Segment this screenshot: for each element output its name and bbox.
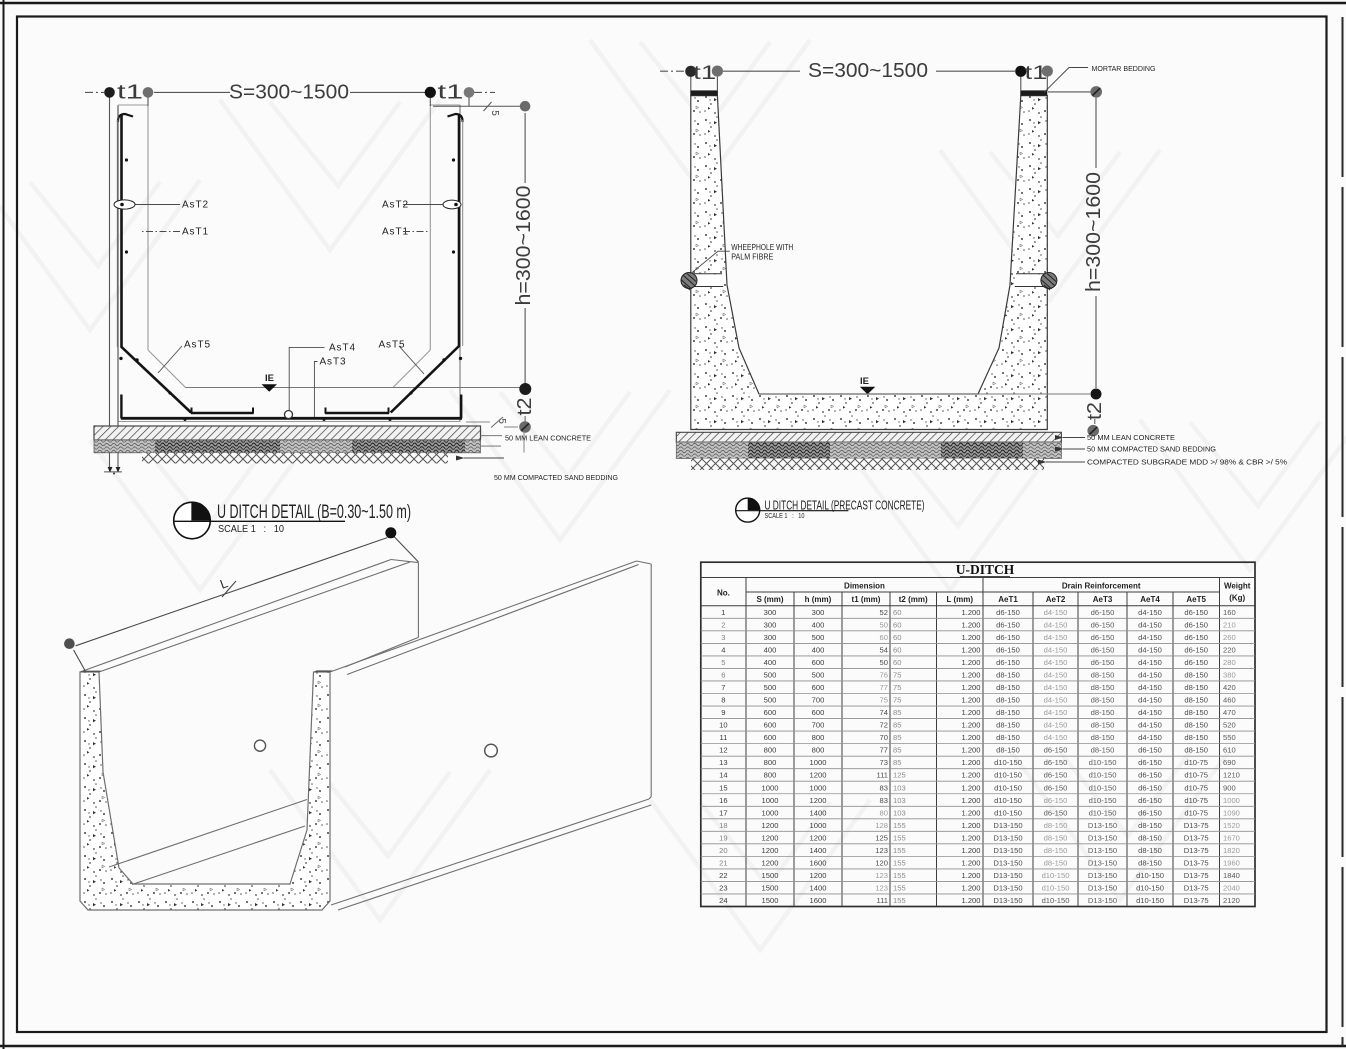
- svg-text:d8-150: d8-150: [1184, 746, 1208, 755]
- svg-text:77: 77: [880, 746, 888, 755]
- svg-text:d4-150: d4-150: [1044, 633, 1068, 642]
- svg-text:1.200: 1.200: [961, 746, 980, 755]
- svg-text:2: 2: [721, 620, 725, 629]
- svg-text:d4-150: d4-150: [1044, 608, 1068, 617]
- svg-text:1600: 1600: [810, 858, 827, 867]
- svg-text:600: 600: [764, 721, 777, 730]
- svg-text:500: 500: [812, 671, 825, 680]
- svg-text:d8-150: d8-150: [1091, 746, 1115, 755]
- svg-text:52: 52: [880, 608, 888, 617]
- svg-text:D13-150: D13-150: [1088, 833, 1117, 842]
- svg-text:123: 123: [875, 871, 888, 880]
- svg-text:WHEEPHOLE WITH: WHEEPHOLE WITH: [731, 243, 793, 252]
- svg-text:1.200: 1.200: [961, 821, 980, 830]
- svg-text:d6-150: d6-150: [1138, 796, 1162, 805]
- svg-text:MORTAR BEDDING: MORTAR BEDDING: [1092, 64, 1156, 73]
- svg-text:550: 550: [1223, 733, 1236, 742]
- svg-text:AeT2: AeT2: [1046, 595, 1066, 604]
- svg-text:D13-150: D13-150: [993, 821, 1022, 830]
- svg-text:60: 60: [893, 620, 901, 629]
- svg-text:1.200: 1.200: [961, 658, 980, 667]
- svg-text:60: 60: [893, 608, 901, 617]
- svg-text:t1: t1: [438, 82, 464, 104]
- svg-text:70: 70: [880, 733, 888, 742]
- svg-text:85: 85: [893, 708, 901, 717]
- svg-text:AeT1: AeT1: [998, 595, 1018, 604]
- svg-text:1.200: 1.200: [961, 708, 980, 717]
- svg-text:AsT2: AsT2: [382, 200, 408, 211]
- svg-text:111: 111: [876, 771, 888, 780]
- svg-text:1200: 1200: [762, 846, 779, 855]
- svg-text:1520: 1520: [1223, 821, 1240, 830]
- svg-text:700: 700: [812, 721, 825, 730]
- svg-text:d10-150: d10-150: [994, 796, 1022, 805]
- svg-text:50: 50: [880, 620, 888, 629]
- svg-text:D13-75: D13-75: [1184, 884, 1209, 893]
- svg-text:50 MM LEAN CONCRETE: 50 MM LEAN CONCRETE: [1087, 433, 1175, 442]
- svg-text:S=300~1500: S=300~1500: [808, 59, 928, 82]
- svg-text:d4-150: d4-150: [1138, 696, 1162, 705]
- svg-text:d6-150: d6-150: [1138, 783, 1162, 792]
- svg-text:d6-150: d6-150: [1091, 608, 1115, 617]
- svg-text:1210: 1210: [1223, 771, 1240, 780]
- svg-text:IE: IE: [860, 376, 869, 387]
- svg-text:600: 600: [764, 708, 777, 717]
- svg-text:d10-150: d10-150: [1089, 783, 1117, 792]
- svg-text:d4-150: d4-150: [1044, 708, 1068, 717]
- svg-text:d6-150: d6-150: [1044, 771, 1068, 780]
- svg-text:d10-150: d10-150: [1089, 796, 1117, 805]
- svg-text:D13-75: D13-75: [1184, 858, 1209, 867]
- svg-text:22: 22: [719, 871, 727, 880]
- svg-text:D13-150: D13-150: [1088, 871, 1117, 880]
- svg-text:t1: t1: [117, 82, 143, 104]
- svg-text:80: 80: [880, 808, 888, 817]
- svg-text:380: 380: [1223, 671, 1236, 680]
- svg-text:D13-75: D13-75: [1184, 846, 1209, 855]
- svg-text:d6-150: d6-150: [1044, 783, 1068, 792]
- svg-text:128: 128: [875, 821, 888, 830]
- svg-text:d10-150: d10-150: [1042, 896, 1070, 905]
- svg-text:d8-150: d8-150: [1138, 821, 1162, 830]
- svg-text:d4-150: d4-150: [1138, 683, 1162, 692]
- svg-text:d6-150: d6-150: [1138, 771, 1162, 780]
- svg-text:1000: 1000: [762, 808, 779, 817]
- svg-text:155: 155: [893, 846, 906, 855]
- svg-text:600: 600: [812, 708, 825, 717]
- svg-text:AeT4: AeT4: [1140, 595, 1160, 604]
- svg-text:460: 460: [1223, 696, 1236, 705]
- svg-text:800: 800: [764, 758, 777, 767]
- svg-text:1000: 1000: [810, 821, 827, 830]
- svg-text:1.200: 1.200: [961, 633, 980, 642]
- svg-text:D13-150: D13-150: [993, 846, 1022, 855]
- svg-text:d8-150: d8-150: [1138, 858, 1162, 867]
- svg-text:260: 260: [1223, 633, 1236, 642]
- svg-text:77: 77: [880, 683, 888, 692]
- svg-text:103: 103: [893, 783, 906, 792]
- svg-text:1000: 1000: [1223, 796, 1240, 805]
- svg-text:d10-150: d10-150: [994, 808, 1022, 817]
- svg-text:1.200: 1.200: [961, 884, 980, 893]
- svg-text:1.200: 1.200: [961, 758, 980, 767]
- svg-text:t2: t2: [1084, 402, 1106, 420]
- svg-text:d10-150: d10-150: [1042, 871, 1070, 880]
- svg-text:1.200: 1.200: [961, 871, 980, 880]
- svg-text:d4-150: d4-150: [1138, 733, 1162, 742]
- svg-text:75: 75: [893, 683, 901, 692]
- svg-text:D13-150: D13-150: [993, 896, 1022, 905]
- svg-text:5: 5: [721, 658, 725, 667]
- svg-text:D13-75: D13-75: [1184, 821, 1209, 830]
- svg-text:220: 220: [1223, 645, 1236, 654]
- svg-text:85: 85: [893, 721, 901, 730]
- svg-text:160: 160: [1223, 608, 1236, 617]
- svg-text:AsT2: AsT2: [182, 200, 208, 211]
- svg-text:54: 54: [880, 645, 888, 654]
- svg-text:d8-150: d8-150: [996, 733, 1020, 742]
- svg-text:1960: 1960: [1223, 858, 1240, 867]
- svg-text:1400: 1400: [810, 846, 827, 855]
- svg-text:d8-150: d8-150: [996, 696, 1020, 705]
- svg-text:83: 83: [880, 796, 888, 805]
- svg-text:d10-150: d10-150: [994, 783, 1022, 792]
- svg-text:d8-150: d8-150: [996, 671, 1020, 680]
- svg-text:155: 155: [893, 896, 906, 905]
- svg-text:d6-150: d6-150: [996, 658, 1020, 667]
- svg-text:d4-150: d4-150: [1138, 633, 1162, 642]
- svg-text:d4-150: d4-150: [1138, 721, 1162, 730]
- svg-text:9: 9: [721, 708, 725, 717]
- svg-text:d8-150: d8-150: [1044, 846, 1068, 855]
- svg-text:d8-150: d8-150: [1091, 696, 1115, 705]
- svg-text:d4-150: d4-150: [1044, 721, 1068, 730]
- svg-text:AsT1: AsT1: [182, 227, 208, 238]
- svg-text:PALM FIBRE: PALM FIBRE: [731, 253, 773, 262]
- svg-text:15: 15: [719, 783, 727, 792]
- svg-text:2040: 2040: [1223, 884, 1240, 893]
- svg-text:72: 72: [880, 721, 888, 730]
- svg-text:900: 900: [1223, 783, 1236, 792]
- svg-text:83: 83: [880, 783, 888, 792]
- svg-text:280: 280: [1223, 658, 1236, 667]
- svg-text:1200: 1200: [810, 871, 827, 880]
- svg-text:60: 60: [880, 633, 888, 642]
- svg-text:155: 155: [893, 871, 906, 880]
- svg-text:700: 700: [812, 696, 825, 705]
- svg-text:13: 13: [719, 758, 727, 767]
- svg-text:300: 300: [764, 608, 777, 617]
- svg-text:1500: 1500: [762, 884, 779, 893]
- svg-text:d8-150: d8-150: [1138, 846, 1162, 855]
- svg-text:400: 400: [764, 645, 777, 654]
- svg-text:d6-150: d6-150: [996, 608, 1020, 617]
- svg-text:d8-150: d8-150: [996, 708, 1020, 717]
- svg-text:t1 (mm): t1 (mm): [852, 595, 881, 604]
- svg-text:1.200: 1.200: [961, 608, 980, 617]
- svg-text:125: 125: [893, 771, 906, 780]
- svg-text:No.: No.: [717, 588, 730, 597]
- svg-text:d8-150: d8-150: [1184, 683, 1208, 692]
- svg-text:D13-75: D13-75: [1184, 871, 1209, 880]
- svg-text:d4-150: d4-150: [1138, 671, 1162, 680]
- svg-text:120: 120: [875, 858, 888, 867]
- svg-text:18: 18: [719, 821, 727, 830]
- svg-text:1000: 1000: [762, 796, 779, 805]
- svg-text:1200: 1200: [762, 821, 779, 830]
- svg-text:d8-150: d8-150: [1044, 821, 1068, 830]
- svg-text:300: 300: [764, 620, 777, 629]
- svg-text:t1: t1: [693, 63, 716, 84]
- svg-text:19: 19: [719, 833, 727, 842]
- svg-text:d6-150: d6-150: [996, 620, 1020, 629]
- svg-text:AsT1: AsT1: [382, 227, 408, 238]
- svg-text:d4-150: d4-150: [1044, 696, 1068, 705]
- svg-text:d8-150: d8-150: [1091, 708, 1115, 717]
- svg-text:1.200: 1.200: [961, 620, 980, 629]
- svg-text:d8-150: d8-150: [996, 721, 1020, 730]
- svg-text:16: 16: [719, 796, 727, 805]
- svg-text:D13-75: D13-75: [1184, 896, 1209, 905]
- svg-text:1.200: 1.200: [961, 645, 980, 654]
- svg-text:1200: 1200: [810, 833, 827, 842]
- svg-text:1600: 1600: [810, 896, 827, 905]
- svg-text:1.200: 1.200: [961, 896, 980, 905]
- svg-text:1.200: 1.200: [961, 808, 980, 817]
- svg-text:73: 73: [880, 758, 888, 767]
- svg-text:3: 3: [721, 633, 725, 642]
- svg-text:AsT5: AsT5: [184, 340, 210, 351]
- svg-text:d8-150: d8-150: [1091, 683, 1115, 692]
- svg-text:1.200: 1.200: [961, 858, 980, 867]
- svg-text:85: 85: [893, 746, 901, 755]
- svg-text:155: 155: [893, 884, 906, 893]
- svg-text:d4-150: d4-150: [1044, 620, 1068, 629]
- svg-text:d6-150: d6-150: [1091, 658, 1115, 667]
- svg-text:d4-150: d4-150: [1138, 645, 1162, 654]
- svg-text:1.200: 1.200: [961, 683, 980, 692]
- svg-text:1200: 1200: [810, 796, 827, 805]
- svg-text:d8-150: d8-150: [1184, 733, 1208, 742]
- svg-text:Drain Reinforcement: Drain Reinforcement: [1062, 581, 1141, 590]
- svg-text:D13-150: D13-150: [993, 858, 1022, 867]
- svg-text:1820: 1820: [1223, 846, 1240, 855]
- svg-text:d6-150: d6-150: [996, 633, 1020, 642]
- svg-text:d10-150: d10-150: [1042, 884, 1070, 893]
- svg-text:1.200: 1.200: [961, 846, 980, 855]
- svg-text:D13-150: D13-150: [1088, 846, 1117, 855]
- svg-text:d10-150: d10-150: [1089, 758, 1117, 767]
- svg-text:20: 20: [719, 846, 727, 855]
- svg-text:8: 8: [721, 696, 725, 705]
- svg-text:800: 800: [764, 746, 777, 755]
- svg-text:d6-150: d6-150: [1138, 746, 1162, 755]
- svg-text:470: 470: [1223, 708, 1236, 717]
- svg-text:D13-75: D13-75: [1184, 833, 1209, 842]
- svg-text:50: 50: [880, 658, 888, 667]
- svg-text:d8-150: d8-150: [1091, 721, 1115, 730]
- svg-text:1000: 1000: [810, 783, 827, 792]
- svg-text:1670: 1670: [1223, 833, 1240, 842]
- svg-text:75: 75: [893, 696, 901, 705]
- svg-text:400: 400: [764, 658, 777, 667]
- svg-text:Dimension: Dimension: [844, 581, 885, 590]
- svg-text:7: 7: [721, 683, 725, 692]
- svg-text:1200: 1200: [762, 833, 779, 842]
- svg-text:1500: 1500: [762, 871, 779, 880]
- svg-text:d4-150: d4-150: [1138, 620, 1162, 629]
- svg-text:1200: 1200: [762, 858, 779, 867]
- svg-text:1.200: 1.200: [961, 796, 980, 805]
- svg-text:d6-150: d6-150: [1138, 758, 1162, 767]
- svg-text:400: 400: [812, 620, 825, 629]
- svg-text:6: 6: [721, 671, 725, 680]
- svg-text:d4-150: d4-150: [1044, 733, 1068, 742]
- svg-text:(Kg): (Kg): [1229, 593, 1245, 602]
- svg-text:d4-150: d4-150: [1044, 645, 1068, 654]
- svg-text:1.200: 1.200: [961, 671, 980, 680]
- svg-text:D13-150: D13-150: [1088, 821, 1117, 830]
- svg-text:420: 420: [1223, 683, 1236, 692]
- svg-text:d8-150: d8-150: [1044, 858, 1068, 867]
- svg-text:500: 500: [764, 696, 777, 705]
- svg-text:1.200: 1.200: [961, 733, 980, 742]
- svg-text:AsT3: AsT3: [320, 357, 346, 368]
- svg-text:D13-150: D13-150: [993, 884, 1022, 893]
- svg-text:t2 (mm): t2 (mm): [899, 595, 928, 604]
- svg-text:D13-150: D13-150: [993, 833, 1022, 842]
- svg-text:t1: t1: [1025, 63, 1048, 84]
- svg-text:75: 75: [880, 696, 888, 705]
- svg-text:155: 155: [893, 833, 906, 842]
- svg-text:1840: 1840: [1223, 871, 1240, 880]
- svg-text:60: 60: [893, 645, 901, 654]
- svg-text:d10-150: d10-150: [1089, 808, 1117, 817]
- svg-text:d10-75: d10-75: [1184, 783, 1208, 792]
- svg-text:D13-150: D13-150: [1088, 884, 1117, 893]
- svg-text:d4-150: d4-150: [1044, 683, 1068, 692]
- svg-text:14: 14: [719, 771, 727, 780]
- svg-text:103: 103: [893, 796, 906, 805]
- svg-text:12: 12: [719, 746, 727, 755]
- svg-text:21: 21: [719, 858, 727, 867]
- svg-text:600: 600: [812, 683, 825, 692]
- svg-text:d4-150: d4-150: [1138, 658, 1162, 667]
- svg-text:d6-150: d6-150: [1184, 645, 1208, 654]
- svg-text:d10-75: d10-75: [1184, 771, 1208, 780]
- svg-text:520: 520: [1223, 721, 1236, 730]
- svg-text:1000: 1000: [810, 758, 827, 767]
- svg-text:SCALE 1 : 10: SCALE 1 : 10: [765, 511, 805, 520]
- svg-text:400: 400: [812, 645, 825, 654]
- svg-text:d8-150: d8-150: [1184, 708, 1208, 717]
- svg-text:85: 85: [893, 758, 901, 767]
- svg-text:85: 85: [893, 733, 901, 742]
- svg-text:d10-75: d10-75: [1184, 808, 1208, 817]
- svg-text:d8-150: d8-150: [1184, 721, 1208, 730]
- svg-text:d6-150: d6-150: [1184, 658, 1208, 667]
- svg-text:d6-150: d6-150: [1091, 645, 1115, 654]
- svg-text:800: 800: [812, 746, 825, 755]
- svg-text:Weight: Weight: [1224, 581, 1251, 590]
- svg-text:d4-150: d4-150: [1044, 671, 1068, 680]
- svg-text:1.200: 1.200: [961, 696, 980, 705]
- svg-text:d6-150: d6-150: [1044, 758, 1068, 767]
- svg-text:300: 300: [812, 608, 825, 617]
- svg-text:60: 60: [893, 658, 901, 667]
- svg-text:1400: 1400: [810, 808, 827, 817]
- svg-text:610: 610: [1223, 746, 1236, 755]
- svg-text:h=300~1600: h=300~1600: [1082, 172, 1105, 292]
- svg-text:d6-150: d6-150: [1091, 620, 1115, 629]
- svg-text:d10-150: d10-150: [1136, 871, 1164, 880]
- svg-text:1.200: 1.200: [961, 833, 980, 842]
- svg-text:155: 155: [893, 858, 906, 867]
- svg-text:123: 123: [875, 846, 888, 855]
- svg-text:17: 17: [719, 808, 727, 817]
- svg-text:IE: IE: [265, 373, 274, 384]
- svg-text:D13-150: D13-150: [1088, 896, 1117, 905]
- svg-text:1.200: 1.200: [961, 771, 980, 780]
- svg-text:S=300~1500: S=300~1500: [229, 81, 349, 104]
- svg-text:76: 76: [880, 671, 888, 680]
- svg-text:111: 111: [876, 896, 888, 905]
- svg-text:500: 500: [764, 683, 777, 692]
- svg-text:d8-150: d8-150: [1091, 671, 1115, 680]
- svg-text:d4-150: d4-150: [1138, 608, 1162, 617]
- svg-text:d4-150: d4-150: [1138, 708, 1162, 717]
- svg-text:1400: 1400: [810, 884, 827, 893]
- svg-text:d6-150: d6-150: [1184, 620, 1208, 629]
- svg-text:d4-150: d4-150: [1044, 658, 1068, 667]
- svg-text:600: 600: [764, 733, 777, 742]
- svg-text:d10-75: d10-75: [1184, 796, 1208, 805]
- svg-text:d10-75: d10-75: [1184, 758, 1208, 767]
- svg-text:2120: 2120: [1223, 896, 1240, 905]
- svg-text:d6-150: d6-150: [1138, 808, 1162, 817]
- svg-text:d8-150: d8-150: [1184, 696, 1208, 705]
- svg-text:210: 210: [1223, 620, 1236, 629]
- svg-text:d6-150: d6-150: [1044, 746, 1068, 755]
- svg-text:4: 4: [721, 645, 725, 654]
- svg-text:S (mm): S (mm): [756, 595, 783, 604]
- svg-text:COMPACTED SUBGRADE MDD >/ 98%: COMPACTED SUBGRADE MDD >/ 98% & CBR >/ 5…: [1087, 458, 1287, 467]
- svg-text:600: 600: [812, 658, 825, 667]
- svg-text:300: 300: [764, 633, 777, 642]
- svg-text:d8-150: d8-150: [996, 683, 1020, 692]
- svg-text:50 MM COMPACTED SAND BEDDING: 50 MM COMPACTED SAND BEDDING: [1087, 445, 1216, 454]
- svg-text:L (mm): L (mm): [947, 595, 974, 604]
- svg-text:d8-150: d8-150: [996, 746, 1020, 755]
- svg-text:d6-150: d6-150: [1091, 633, 1115, 642]
- svg-text:1.200: 1.200: [961, 783, 980, 792]
- svg-text:1: 1: [721, 608, 725, 617]
- svg-text:AsT4: AsT4: [329, 343, 355, 354]
- svg-text:60: 60: [893, 633, 901, 642]
- svg-text:d6-150: d6-150: [996, 645, 1020, 654]
- svg-text:103: 103: [893, 808, 906, 817]
- svg-text:11: 11: [719, 733, 727, 742]
- svg-text:d10-150: d10-150: [1136, 884, 1164, 893]
- svg-text:U-DITCH: U-DITCH: [956, 562, 1015, 577]
- svg-text:AeT3: AeT3: [1093, 595, 1113, 604]
- svg-text:1.200: 1.200: [961, 721, 980, 730]
- svg-text:1090: 1090: [1223, 808, 1240, 817]
- svg-text:500: 500: [764, 671, 777, 680]
- svg-text:1000: 1000: [762, 783, 779, 792]
- svg-text:d8-150: d8-150: [1044, 833, 1068, 842]
- svg-text:50 MM COMPACTED SAND BEDDING: 50 MM COMPACTED SAND BEDDING: [494, 473, 618, 482]
